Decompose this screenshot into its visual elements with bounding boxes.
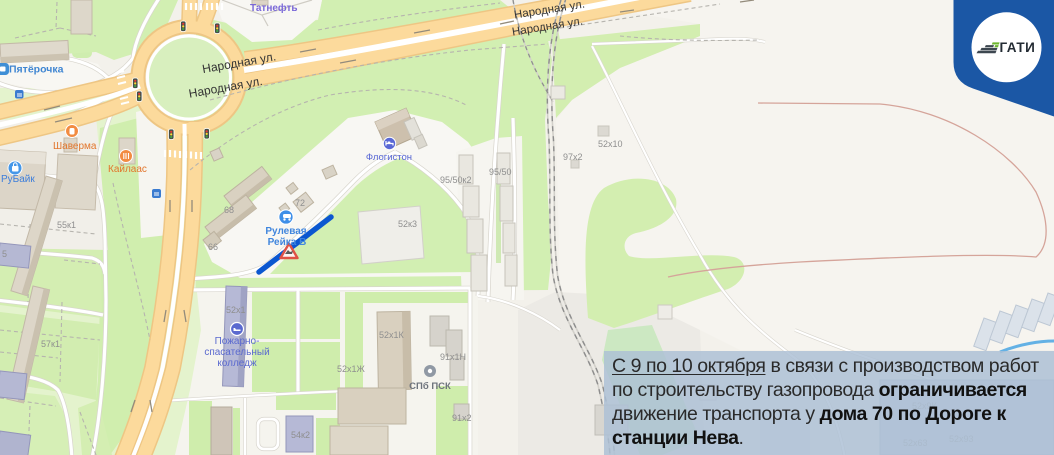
svg-text:Флогистон: Флогистон <box>366 152 412 163</box>
svg-text:57к1: 57к1 <box>41 339 60 349</box>
svg-text:54к2: 54к2 <box>291 430 310 440</box>
svg-text:Шаверма: Шаверма <box>53 141 97 152</box>
svg-text:52к3: 52к3 <box>398 219 417 229</box>
svg-text:52х10: 52х10 <box>598 139 623 149</box>
svg-text:Пожарно-: Пожарно- <box>215 336 260 347</box>
svg-text:72: 72 <box>295 198 305 208</box>
svg-text:55к1: 55к1 <box>57 220 76 230</box>
svg-text:66: 66 <box>208 242 218 252</box>
svg-text:95/50к2: 95/50к2 <box>440 175 471 185</box>
svg-text:Татнефть: Татнефть <box>250 2 298 14</box>
svg-text:52х1К: 52х1К <box>379 330 405 340</box>
svg-text:колледж: колледж <box>217 358 257 369</box>
svg-text:91х2: 91х2 <box>452 413 472 423</box>
svg-text:спасательный: спасательный <box>204 347 269 358</box>
svg-text:Рейка В: Рейка В <box>268 237 307 248</box>
svg-text:РуБайк: РуБайк <box>1 174 35 185</box>
svg-text:52х1Ж: 52х1Ж <box>337 364 366 374</box>
svg-text:91х1Н: 91х1Н <box>440 352 466 362</box>
svg-text:52х1: 52х1 <box>226 305 246 315</box>
svg-text:СПб ПСК: СПб ПСК <box>409 381 451 392</box>
svg-text:Рулевая: Рулевая <box>265 226 306 237</box>
svg-text:5: 5 <box>2 249 7 259</box>
svg-text:ГАТИ: ГАТИ <box>1000 40 1036 55</box>
svg-text:97х2: 97х2 <box>563 152 583 162</box>
svg-text:Кайлаас: Кайлаас <box>108 164 147 175</box>
svg-text:95/50: 95/50 <box>489 167 512 177</box>
svg-text:Пятёрочка: Пятёрочка <box>9 64 64 76</box>
svg-text:68: 68 <box>224 205 234 215</box>
